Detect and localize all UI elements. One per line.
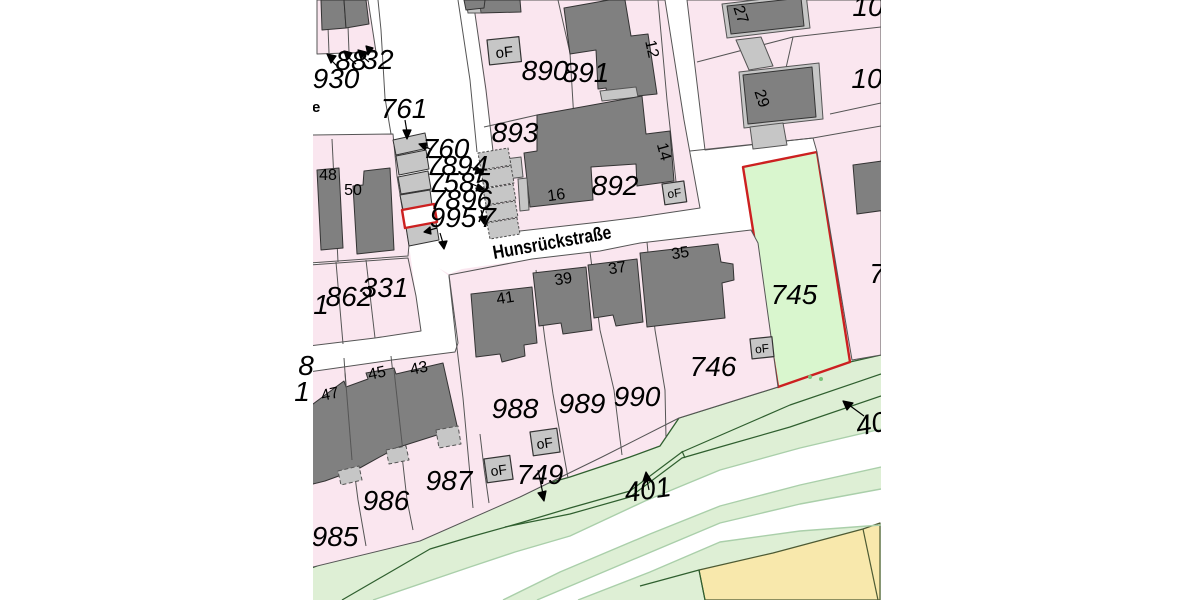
- svg-text:oF: oF: [754, 341, 769, 356]
- svg-text:10: 10: [851, 63, 883, 94]
- svg-text:40: 40: [853, 406, 889, 442]
- svg-text:45: 45: [367, 363, 388, 383]
- svg-text:930: 930: [313, 63, 360, 94]
- svg-text:749: 749: [517, 459, 564, 490]
- svg-text:oF: oF: [489, 461, 507, 479]
- svg-text:331: 331: [362, 272, 409, 303]
- svg-text:12: 12: [641, 39, 661, 60]
- svg-text:oF: oF: [667, 185, 683, 201]
- svg-text:892: 892: [592, 170, 639, 201]
- svg-text:893: 893: [492, 117, 539, 148]
- svg-text:43: 43: [409, 358, 430, 378]
- svg-text:50: 50: [344, 182, 362, 199]
- svg-text:7: 7: [869, 258, 886, 289]
- svg-text:988: 988: [492, 393, 539, 424]
- svg-text:39: 39: [553, 270, 573, 290]
- svg-text:761: 761: [381, 93, 428, 124]
- svg-text:oF: oF: [535, 434, 553, 452]
- svg-text:35: 35: [670, 244, 690, 264]
- svg-text:47: 47: [320, 384, 341, 404]
- svg-text:16: 16: [546, 186, 566, 205]
- svg-text:891: 891: [563, 57, 610, 88]
- svg-text:990: 990: [614, 381, 661, 412]
- svg-text:989: 989: [559, 388, 606, 419]
- svg-text:e: e: [312, 99, 320, 116]
- svg-text:745: 745: [771, 279, 818, 310]
- svg-text:985: 985: [312, 521, 359, 552]
- svg-text:oF: oF: [495, 43, 514, 62]
- svg-text:987: 987: [426, 465, 474, 496]
- svg-text:1: 1: [313, 289, 329, 320]
- svg-text:41: 41: [495, 289, 515, 309]
- svg-text:1: 1: [294, 376, 310, 407]
- svg-text:746: 746: [690, 351, 737, 382]
- svg-text:986: 986: [363, 485, 410, 516]
- svg-text:37: 37: [607, 259, 627, 279]
- svg-text:48: 48: [319, 167, 337, 184]
- svg-text:10: 10: [852, 0, 884, 22]
